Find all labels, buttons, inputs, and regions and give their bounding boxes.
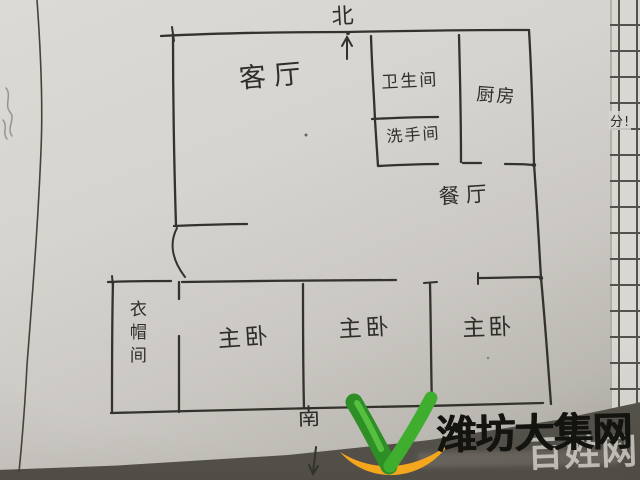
floor-plan-photo: 分! <box>0 0 640 480</box>
watermark-site-name: 潍坊大集网 <box>435 399 631 461</box>
logo-v-right-stroke <box>390 398 431 466</box>
